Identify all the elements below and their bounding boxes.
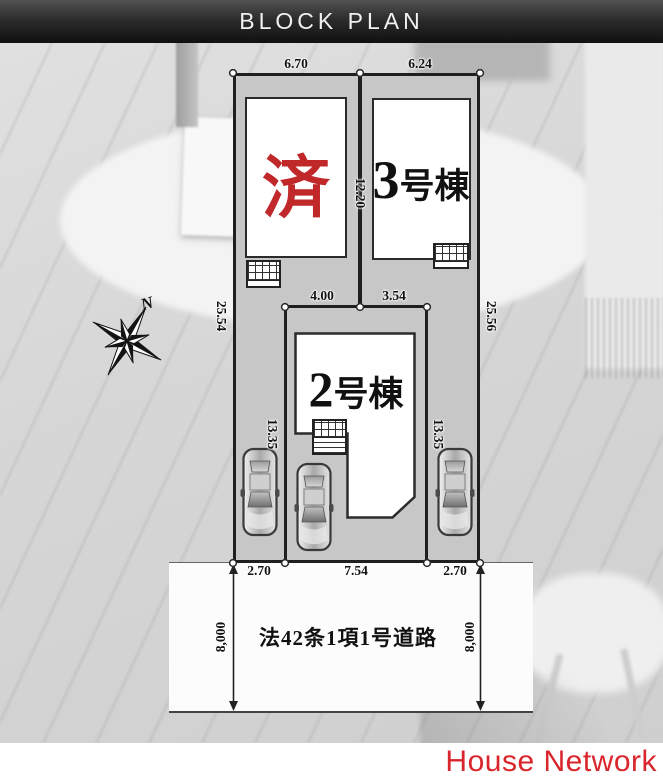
dim-road-width-left: 8,000	[213, 622, 229, 652]
dim-road-width-right: 8,000	[462, 622, 478, 652]
dim-frontage-left: 2.70	[247, 563, 271, 579]
dim-frontage-right: 2.70	[443, 563, 467, 579]
dim-frontage-center: 7.54	[344, 563, 368, 579]
porch-sold	[246, 260, 281, 288]
porch-unit3	[433, 243, 469, 269]
dim-site-depth-right: 25.56	[483, 301, 499, 331]
brand-logo: House Network	[445, 745, 657, 779]
dim-drive-depth-right: 13.35	[430, 419, 446, 449]
throw-fringe	[585, 298, 663, 378]
building-label-unit3: 3号棟	[372, 149, 469, 211]
building-label-sold: 済	[262, 133, 330, 232]
dim-lot1-frontage: 6.70	[284, 56, 308, 72]
dim-center-depth: 12.20	[352, 178, 368, 208]
dim-lot2-top-left: 4.00	[310, 288, 334, 304]
page-title: BLOCK PLAN	[239, 8, 423, 35]
dim-lot2-top-right: 3.54	[382, 288, 406, 304]
unit2-suffix: 号棟	[333, 375, 403, 414]
unit3-suffix: 号棟	[399, 167, 469, 206]
dim-lot3-frontage: 6.24	[408, 56, 432, 72]
road-label: 法42条1項1号道路	[259, 622, 437, 652]
unit3-number: 3	[372, 150, 399, 210]
dim-site-depth-left: 25.54	[213, 301, 229, 331]
dim-drive-depth-left: 13.35	[264, 419, 280, 449]
footer-bar: House Network	[0, 743, 663, 780]
building-label-unit2: 2号棟	[308, 360, 403, 418]
porch-unit2	[312, 419, 347, 455]
header-bar: BLOCK PLAN	[0, 0, 663, 43]
unit2-number: 2	[308, 361, 333, 417]
wall-beam	[176, 43, 198, 127]
